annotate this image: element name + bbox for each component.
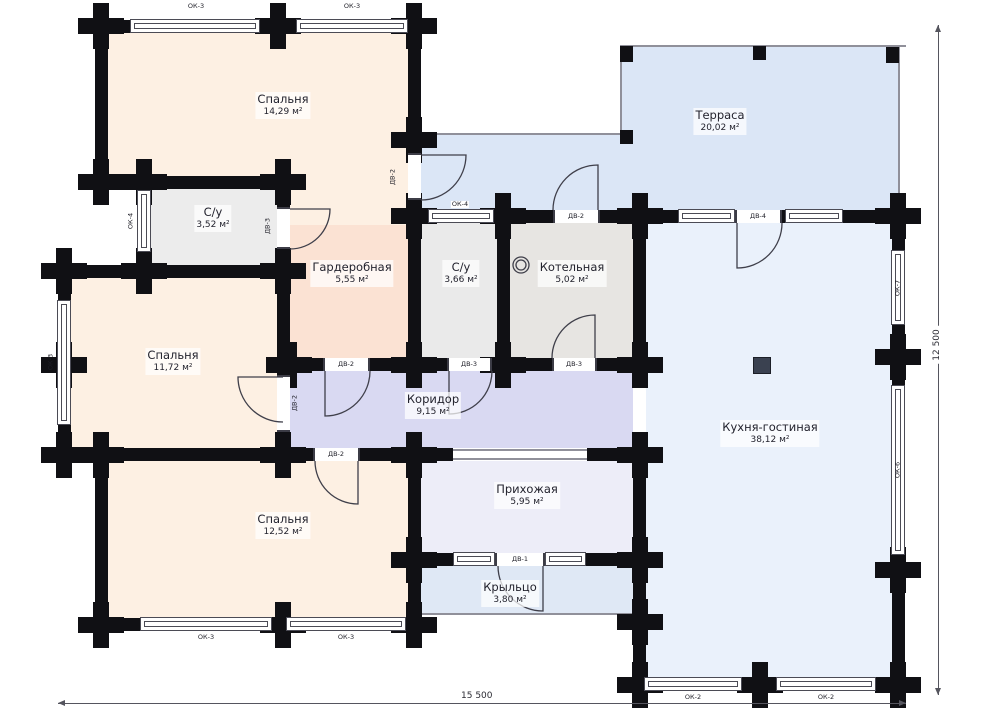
room-label-hallway: Прихожая5,95 м² bbox=[494, 482, 560, 509]
window-symbol bbox=[776, 677, 876, 691]
room-label-bathroom2: С/у3,66 м² bbox=[442, 260, 479, 287]
window-label: ОК-6 bbox=[894, 461, 901, 479]
room-label-bedroom2: Спальня11,72 м² bbox=[145, 348, 200, 375]
window-label: ОК-3 bbox=[343, 3, 361, 10]
floor-plan-canvas: Спальня14,29 м² С/у3,52 м² Гардеробная5,… bbox=[0, 0, 1000, 718]
porch-edge bbox=[421, 613, 633, 615]
window-symbol bbox=[678, 209, 735, 223]
wall bbox=[277, 432, 290, 461]
door-label: ДВ-2 bbox=[567, 213, 585, 220]
window-symbol bbox=[137, 190, 151, 252]
dimension-arrow bbox=[899, 700, 906, 706]
wall bbox=[408, 20, 421, 153]
wall bbox=[95, 20, 108, 189]
door-label: ДВ-2 bbox=[337, 361, 355, 368]
window-symbol bbox=[286, 617, 406, 631]
window-label: ОК-3 bbox=[337, 634, 355, 641]
terrace-post bbox=[886, 47, 899, 63]
door-label: ДВ-2 bbox=[327, 451, 345, 458]
door-opening bbox=[277, 207, 290, 249]
wall bbox=[95, 448, 108, 631]
room-fill-terrace-strip bbox=[421, 135, 620, 210]
terrace-post bbox=[620, 130, 633, 144]
wall bbox=[633, 448, 646, 691]
room-label-porch: Крыльцо3,80 м² bbox=[481, 580, 539, 607]
terrace-strip-edge bbox=[421, 133, 621, 135]
door-label: ДВ-3 bbox=[565, 361, 583, 368]
door-label: ДВ-1 bbox=[511, 556, 529, 563]
room-fill-boiler bbox=[510, 223, 633, 358]
room-label-kitchen: Кухня-гостиная38,12 м² bbox=[720, 420, 819, 447]
room-label-corridor: Коридор9,15 м² bbox=[405, 392, 461, 419]
window-label: ОК-4 bbox=[127, 212, 134, 230]
window-label: ОК-3 bbox=[197, 634, 215, 641]
room-label-boiler: Котельная5,02 м² bbox=[538, 260, 607, 287]
wall bbox=[95, 176, 290, 189]
door-label: ДВ-2 bbox=[389, 168, 396, 186]
terrace-post bbox=[620, 46, 633, 62]
room-fill-kitchen bbox=[646, 223, 892, 678]
window-label: ОК-3 bbox=[187, 3, 205, 10]
terrace-post bbox=[753, 46, 766, 60]
room-fill-bedroom3 bbox=[108, 461, 408, 618]
room-fill-bathroom2 bbox=[421, 223, 497, 358]
room-label-bedroom1: Спальня14,29 м² bbox=[255, 92, 310, 119]
door-opening bbox=[277, 375, 290, 432]
wall bbox=[277, 176, 290, 207]
window-symbol bbox=[296, 19, 408, 33]
dimension-text-width: 15 500 bbox=[458, 691, 496, 701]
window-symbol bbox=[545, 552, 586, 566]
kitchen-chimney bbox=[753, 357, 771, 374]
dimension-line-bottom bbox=[58, 703, 906, 704]
room-fill-terrace bbox=[620, 47, 898, 210]
room-fill-wardrobe bbox=[290, 225, 408, 358]
window-label: ОК-7 bbox=[894, 279, 901, 297]
window-label: ОК-2 bbox=[684, 694, 702, 701]
dimension-text-height: 12 500 bbox=[932, 326, 942, 364]
wall bbox=[497, 223, 510, 358]
opening-line bbox=[453, 449, 587, 451]
terrace-edge-right bbox=[898, 45, 900, 210]
window-symbol bbox=[130, 19, 260, 33]
wall bbox=[633, 210, 646, 371]
window-symbol bbox=[57, 300, 71, 425]
window-label: ОК-2 bbox=[817, 694, 835, 701]
door-opening bbox=[408, 153, 421, 200]
window-label: ОК-4 bbox=[451, 201, 469, 208]
door-label: ДВ-2 bbox=[291, 394, 298, 412]
door-label: ДВ-3 bbox=[264, 217, 271, 235]
room-label-terrace: Терраса20,02 м² bbox=[693, 108, 746, 135]
room-fill-corridor bbox=[290, 371, 633, 448]
wall bbox=[360, 448, 453, 461]
door-label: ДВ-4 bbox=[749, 213, 767, 220]
room-label-wardrobe: Гардеробная5,55 м² bbox=[310, 260, 393, 287]
window-symbol bbox=[140, 617, 272, 631]
room-fill-bedroom1-ext bbox=[290, 33, 408, 225]
dimension-arrow bbox=[935, 25, 941, 32]
dimension-arrow bbox=[58, 700, 65, 706]
wall bbox=[58, 265, 290, 278]
wall bbox=[408, 461, 421, 631]
dimension-arrow bbox=[935, 688, 941, 695]
opening-line bbox=[453, 458, 587, 460]
window-symbol bbox=[453, 552, 495, 566]
door-label: ДВ-3 bbox=[460, 361, 478, 368]
window-symbol bbox=[785, 209, 843, 223]
wall bbox=[492, 358, 552, 371]
room-label-bathroom1: С/у3,52 м² bbox=[194, 205, 231, 232]
window-label: ОК-3 bbox=[47, 353, 54, 371]
wall bbox=[408, 200, 421, 371]
wall bbox=[277, 249, 290, 375]
window-symbol bbox=[644, 677, 742, 691]
window-symbol bbox=[428, 209, 494, 223]
room-label-bedroom3: Спальня12,52 м² bbox=[255, 512, 310, 539]
